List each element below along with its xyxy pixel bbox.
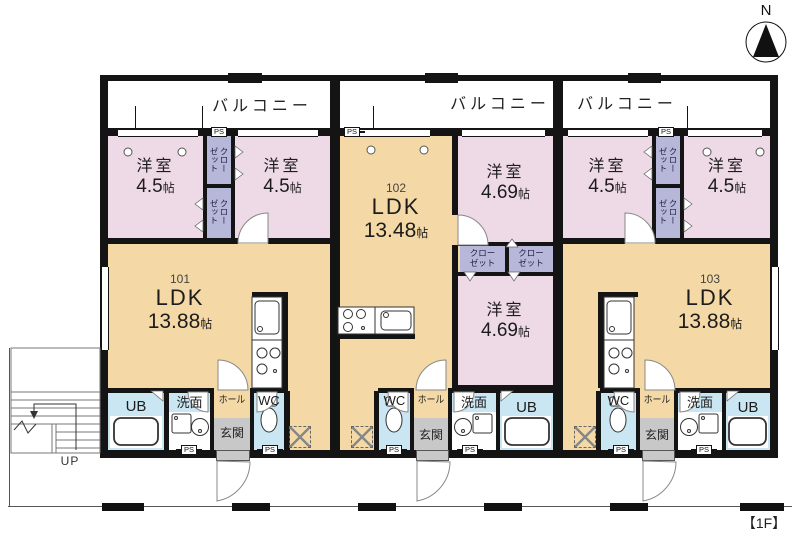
- ldk-size: 13.88帖: [108, 310, 252, 336]
- hall-102-label: ホール: [416, 394, 446, 407]
- north-arrow-icon: [746, 22, 786, 62]
- compass-n-label: N: [755, 2, 777, 19]
- closet-102-left-label: クローゼット: [460, 248, 505, 268]
- closet-102-right-label: クローゼット: [509, 248, 553, 268]
- ps-text: PS: [211, 127, 227, 137]
- wc-101-label: WC: [254, 393, 284, 408]
- unit-number: 102: [340, 181, 452, 195]
- room-name: 洋室: [458, 163, 553, 182]
- entrance-102-label: 玄関: [414, 428, 448, 443]
- washroom-102-label: 洗面: [452, 395, 496, 410]
- ps-shaft-label: PS: [690, 444, 718, 455]
- room-103-2-label: 洋室 4.5帖: [684, 157, 770, 199]
- ps-shaft-label: PS: [380, 444, 408, 455]
- unit-number: 101: [108, 272, 252, 286]
- closet-101-lower-label: クローゼット: [207, 191, 231, 235]
- room-102-bottom-label: 洋室 4.69帖: [458, 301, 553, 343]
- room-101-2-label: 洋室 4.5帖: [235, 157, 330, 199]
- ldk-103-label: 103 LDK 13.88帖: [640, 272, 780, 336]
- room-size: 4.69帖: [458, 320, 553, 343]
- ps-shaft-label: PS: [205, 126, 233, 137]
- floor-plan-1f: バルコニー バルコニー バルコニー 洋室 4.5帖 洋室 4.5帖 洋室 4.6…: [0, 0, 800, 543]
- room-103-1-label: 洋室 4.5帖: [563, 157, 652, 199]
- ps-shaft-label: PS: [338, 126, 366, 137]
- closet-103-upper-label: クローゼット: [656, 139, 680, 183]
- room-name: 洋室: [235, 157, 330, 176]
- room-size: 4.69帖: [458, 182, 553, 205]
- room-name: 洋室: [458, 301, 553, 320]
- room-101-1-label: 洋室 4.5帖: [108, 157, 203, 199]
- unit-number: 103: [640, 272, 780, 286]
- staircase: [11, 348, 100, 453]
- kitchen-102-icon: [338, 307, 414, 334]
- ldk-name: LDK: [340, 195, 452, 219]
- ps-shaft-label: PS: [456, 444, 484, 455]
- ps-text: PS: [613, 445, 629, 455]
- stairs-up-label: UP: [50, 454, 90, 468]
- ldk-size: 13.88帖: [640, 310, 780, 336]
- ub-101-label: UB: [108, 398, 164, 415]
- room-size: 4.5帖: [684, 176, 770, 199]
- wc-102-label: WC: [379, 393, 410, 408]
- closet-101-upper-label: クローゼット: [207, 139, 231, 183]
- ps-text: PS: [658, 127, 674, 137]
- room-size: 4.5帖: [563, 176, 652, 199]
- wc-103-label: WC: [601, 393, 636, 408]
- closet-103-lower-label: クローゼット: [656, 191, 680, 235]
- kitchen-101-icon: [252, 297, 282, 388]
- ps-text: PS: [262, 445, 278, 455]
- ps-text: PS: [181, 445, 197, 455]
- room-102-top-label: 洋室 4.69帖: [458, 163, 553, 205]
- room-size: 4.5帖: [235, 176, 330, 199]
- washroom-103-label: 洗面: [678, 395, 722, 410]
- ldk-name: LDK: [640, 286, 780, 310]
- floor-tag-label: 【1F】: [733, 513, 795, 533]
- ps-text: PS: [462, 445, 478, 455]
- ps-shaft-label: PS: [607, 444, 635, 455]
- room-size: 4.5帖: [108, 176, 203, 199]
- washroom-101-label: 洗面: [169, 395, 210, 410]
- ps-shaft-label: PS: [256, 444, 284, 455]
- ps-text: PS: [696, 445, 712, 455]
- balcony-label-3: バルコニー: [547, 90, 707, 114]
- room-name: 洋室: [108, 157, 203, 176]
- kitchen-103-icon: [604, 297, 634, 388]
- ps-text: PS: [386, 445, 402, 455]
- ldk-size: 13.48帖: [340, 219, 452, 245]
- hall-103-label: ホール: [642, 394, 672, 407]
- balcony-label-1: バルコニー: [182, 92, 342, 116]
- room-name: 洋室: [563, 157, 652, 176]
- ub-103-label: UB: [726, 399, 770, 416]
- room-name: 洋室: [684, 157, 770, 176]
- hall-101-label: ホール: [216, 394, 248, 407]
- ps-shaft-label: PS: [652, 126, 680, 137]
- ps-shaft-label: PS: [175, 444, 203, 455]
- ldk-101-label: 101 LDK 13.88帖: [108, 272, 252, 336]
- ldk-name: LDK: [108, 286, 252, 310]
- entrance-103-label: 玄関: [640, 428, 674, 443]
- ub-102-label: UB: [500, 399, 553, 416]
- entrance-101-label: 玄関: [214, 426, 250, 441]
- ldk-102-label: 102 LDK 13.48帖: [340, 181, 452, 245]
- ps-text: PS: [344, 127, 360, 137]
